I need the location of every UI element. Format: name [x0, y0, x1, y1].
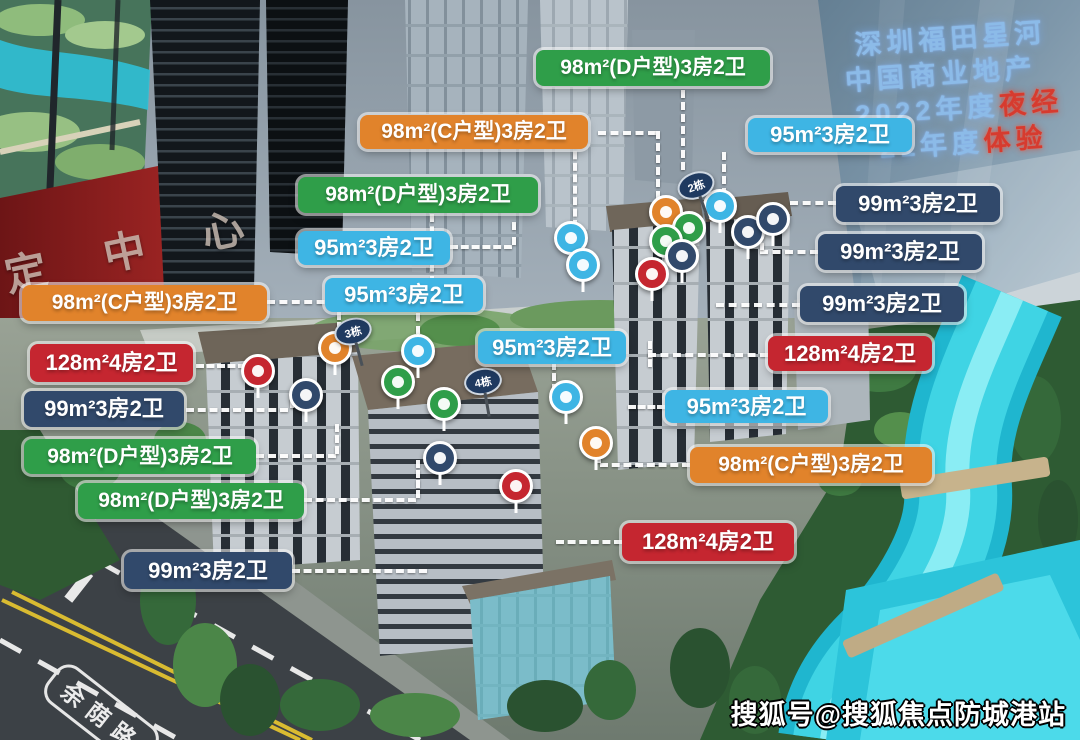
unit-type-label: 98m²(C户型)3房2卫 — [690, 447, 932, 483]
annotated-sandtable-photo: 深圳福田星河 中国商业地产 2022年度夜经 21年度体验 定 中 心 余荫路 … — [0, 0, 1080, 740]
unit-type-label: 99m²3房2卫 — [836, 186, 1000, 222]
unit-type-label: 99m²3房2卫 — [124, 552, 292, 589]
unit-type-label: 98m²(D户型)3房2卫 — [536, 50, 770, 86]
unit-type-label: 98m²(C户型)3房2卫 — [360, 115, 588, 149]
unit-type-label: 95m²3房2卫 — [478, 331, 626, 364]
unit-type-label: 99m²3房2卫 — [800, 286, 964, 322]
unit-type-label: 128m²4房2卫 — [622, 523, 794, 561]
unit-type-label: 128m²4房2卫 — [768, 336, 932, 371]
unit-type-label: 128m²4房2卫 — [30, 344, 193, 382]
unit-type-label: 95m²3房2卫 — [325, 278, 483, 312]
unit-type-label: 99m²3房2卫 — [24, 391, 184, 427]
unit-type-label: 95m²3房2卫 — [665, 390, 828, 423]
unit-type-label: 98m²(C户型)3房2卫 — [22, 285, 267, 321]
unit-type-label: 95m²3房2卫 — [748, 118, 912, 152]
unit-labels-layer: 98m²(D户型)3房2卫98m²(C户型)3房2卫95m²3房2卫98m²(D… — [0, 0, 1080, 740]
unit-type-label: 95m²3房2卫 — [298, 231, 450, 265]
watermark-text: 搜狐号@搜狐焦点防城港站 — [731, 693, 1066, 732]
unit-type-label: 98m²(D户型)3房2卫 — [78, 483, 304, 519]
unit-type-label: 98m²(D户型)3房2卫 — [298, 177, 538, 213]
unit-type-label: 98m²(D户型)3房2卫 — [24, 439, 256, 474]
unit-type-label: 99m²3房2卫 — [818, 234, 982, 270]
